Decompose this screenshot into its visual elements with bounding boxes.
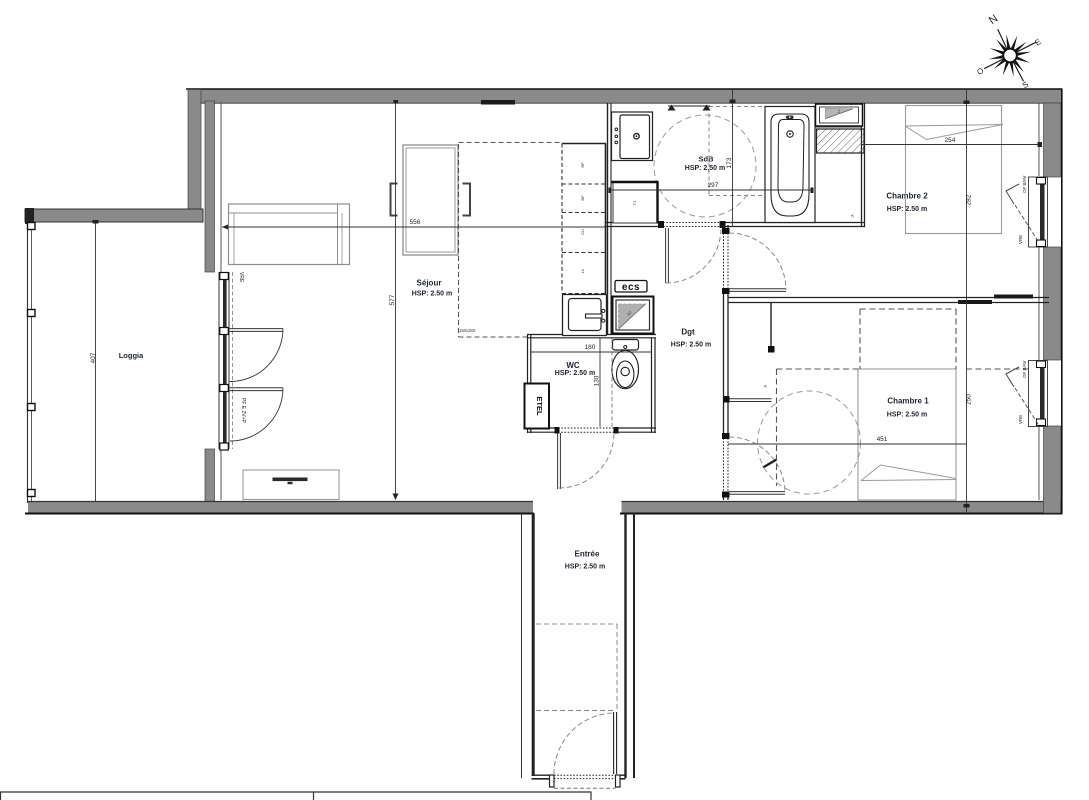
svg-text:Séjour: Séjour — [417, 279, 442, 288]
svg-text:SdB: SdB — [699, 155, 715, 164]
svg-text:E: E — [1033, 37, 1043, 47]
svg-text:OF B/AV: OF B/AV — [1022, 176, 1027, 193]
svg-text:Ji: Ji — [850, 215, 855, 218]
svg-text:HSP: 2,50 m: HSP: 2,50 m — [685, 165, 725, 172]
svg-text:RF: RF — [580, 162, 585, 168]
svg-text:HSP: 2.50 m: HSP: 2.50 m — [671, 342, 711, 349]
svg-text:CU: CU — [580, 229, 585, 235]
svg-text:ETEL: ETEL — [535, 396, 544, 416]
svg-text:VRE: VRE — [1018, 235, 1023, 244]
svg-text:297: 297 — [708, 182, 719, 189]
svg-text:Ji: Ji — [763, 385, 768, 388]
svg-text:Loggia: Loggia — [119, 351, 144, 360]
svg-text:577: 577 — [389, 294, 396, 305]
svg-text:VRE: VRE — [1018, 415, 1023, 424]
svg-text:LV: LV — [580, 268, 585, 273]
svg-text:LL: LL — [836, 108, 841, 113]
svg-text:PF E 2V+P: PF E 2V+P — [240, 398, 246, 424]
svg-text:254: 254 — [945, 137, 956, 144]
svg-text:451: 451 — [877, 436, 888, 443]
svg-text:130: 130 — [594, 375, 601, 386]
svg-text:556: 556 — [410, 219, 421, 226]
svg-text:282: 282 — [966, 194, 973, 205]
svg-text:Chambre 2: Chambre 2 — [886, 192, 928, 201]
svg-text:407: 407 — [90, 352, 97, 363]
svg-text:150x280: 150x280 — [459, 328, 476, 333]
svg-text:Chambre 1: Chambre 1 — [887, 397, 929, 406]
svg-text:T1: T1 — [632, 200, 637, 205]
svg-text:173: 173 — [726, 157, 733, 168]
svg-text:N: N — [987, 13, 1000, 27]
svg-text:O: O — [975, 66, 985, 77]
svg-text:250: 250 — [966, 394, 973, 405]
svg-text:HSP: 2.50 m: HSP: 2.50 m — [887, 412, 927, 419]
svg-text:ecs: ecs — [622, 282, 640, 293]
svg-text:180: 180 — [585, 344, 596, 351]
svg-text:OF B/AV: OF B/AV — [1022, 361, 1027, 378]
svg-text:BF: BF — [580, 195, 585, 201]
svg-text:HSP: 2.50 m: HSP: 2.50 m — [565, 564, 605, 571]
svg-text:VRE: VRE — [238, 272, 244, 283]
svg-text:Entrée: Entrée — [575, 550, 600, 559]
svg-text:HSP: 2.50 m: HSP: 2.50 m — [412, 291, 452, 298]
svg-text:WC: WC — [566, 361, 580, 370]
svg-text:Dgt: Dgt — [681, 328, 695, 337]
svg-text:HSP: 2.50 m: HSP: 2.50 m — [887, 206, 927, 213]
svg-text:HSP: 2.50 m: HSP: 2.50 m — [555, 370, 595, 377]
